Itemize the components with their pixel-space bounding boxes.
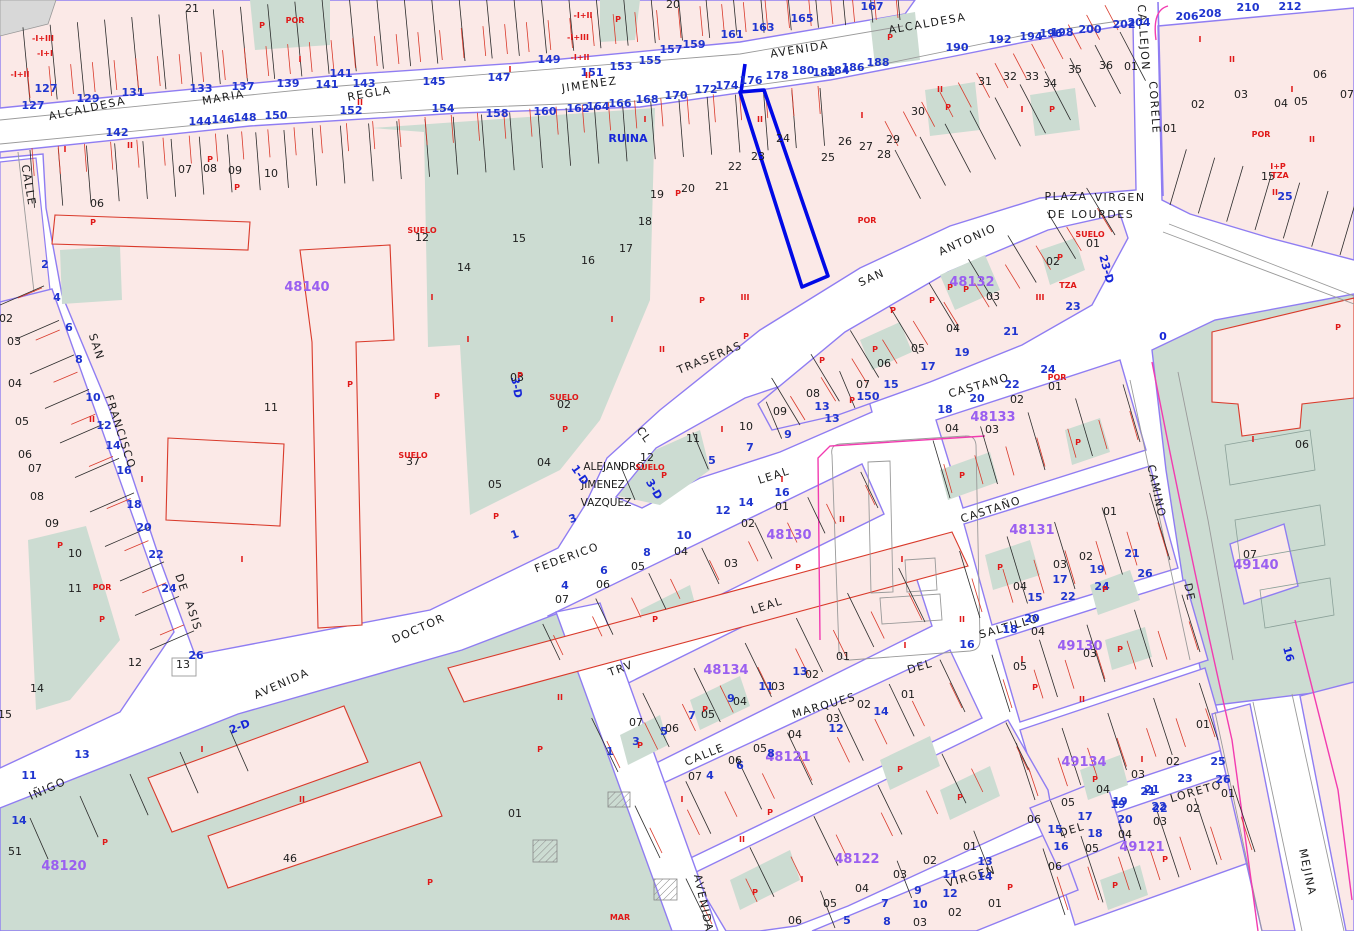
red-mark-labels-item: P <box>795 563 801 572</box>
house-number-labels-item: 20 <box>1117 813 1133 826</box>
parcel-number-labels-item: 07 <box>856 378 870 391</box>
house-number-labels-item: 144 <box>189 115 212 128</box>
house-number-labels-item: 5 <box>708 454 716 467</box>
house-number-labels-item: 8 <box>767 747 775 760</box>
parcel-number-labels-item: 14 <box>30 682 44 695</box>
house-number-labels-item: 148 <box>234 111 257 124</box>
house-number-labels-item: 167 <box>861 0 884 13</box>
parcel-number-labels-item: 09 <box>773 405 787 418</box>
parcel-number-labels-item: 02 <box>805 668 819 681</box>
parcel-number-labels-item: 05 <box>488 478 502 491</box>
parcel-number-labels-item: 06 <box>1295 438 1309 451</box>
red-mark-labels-item: P <box>997 563 1003 572</box>
house-number-labels-item: 157 <box>660 43 683 56</box>
red-mark-labels-item: II <box>1229 55 1235 64</box>
red-mark-labels-item: P <box>517 371 523 380</box>
parcel-number-labels-item: 04 <box>946 322 960 335</box>
parcel-number-labels-item: 03 <box>771 680 785 693</box>
parcel-number-labels-item: 02 <box>1166 755 1180 768</box>
parcel-number-labels-item: 04 <box>1031 625 1045 638</box>
parcel-number-labels-item: 02 <box>1079 550 1093 563</box>
parcel-number-labels-item: 02 <box>0 312 13 325</box>
house-number-labels-item: 212 <box>1279 0 1302 13</box>
parcel-number-labels-item: 07 <box>1340 88 1354 101</box>
owner-annotation-labels-item: VAZQUEZ <box>581 497 632 509</box>
parcel-number-labels-item: 04 <box>1096 783 1110 796</box>
house-number-labels-item: 180 <box>792 64 815 77</box>
parcel-number-labels-item: 14 <box>457 261 471 274</box>
parcel-number-labels-item: 09 <box>228 164 242 177</box>
red-mark-labels-item: I <box>781 475 784 484</box>
house-number-labels-item: 12 <box>715 504 730 517</box>
parcel-number-labels-item: 28 <box>877 148 891 161</box>
red-mark-labels-item: P <box>947 283 953 292</box>
house-number-labels-item: 21 <box>1003 325 1018 338</box>
red-mark-labels-item: P <box>562 425 568 434</box>
parcel-number-labels-item: 01 <box>508 807 522 820</box>
block-id-labels-item: 48132 <box>949 275 994 290</box>
house-number-labels-item: 19 <box>954 346 969 359</box>
red-mark-labels-item: P <box>890 306 896 315</box>
parcel-number-labels-item: 33 <box>1025 70 1039 83</box>
house-number-labels-item: 198 <box>1051 26 1074 39</box>
house-number-labels-item: 172 <box>695 83 718 96</box>
street-name-labels-item: PLAZA <box>1044 190 1087 203</box>
parcel-number-labels-item: 01 <box>1103 505 1117 518</box>
red-mark-labels-item: P <box>434 392 440 401</box>
red-mark-labels-item: I <box>467 335 470 344</box>
cadastral-map-viewport[interactable]: ALCALDESAMARIAREGLAJIMENEZAVENIDAALCALDE… <box>0 0 1354 931</box>
house-number-labels-item: 206 <box>1176 10 1199 23</box>
parcel-number-labels-item: 04 <box>733 695 747 708</box>
red-mark-labels-item: II <box>937 85 943 94</box>
red-mark-labels-item: I <box>904 641 907 650</box>
parcel-number-labels-item: 05 <box>911 342 925 355</box>
red-mark-labels-item: P <box>957 793 963 802</box>
cadastral-map[interactable]: ALCALDESAMARIAREGLAJIMENEZAVENIDAALCALDE… <box>0 0 1354 931</box>
red-mark-labels-item: P <box>207 155 213 164</box>
red-mark-labels-item: P <box>963 285 969 294</box>
red-mark-labels-item: POR <box>93 583 112 592</box>
house-number-labels-item: 26 <box>1215 773 1231 786</box>
house-number-labels-item: 8 <box>75 353 83 366</box>
red-mark-labels-item: P <box>699 296 705 305</box>
blue-note-labels-item: 0 <box>1159 330 1167 343</box>
house-number-labels-item: 18 <box>1002 623 1017 636</box>
red-mark-labels-item: -I+I <box>37 49 53 58</box>
house-number-labels-item: 19 <box>1089 563 1104 576</box>
stairs-hatch <box>533 840 557 862</box>
parcel-number-labels-item: 03 <box>893 868 907 881</box>
house-number-labels-item: 208 <box>1199 7 1222 20</box>
house-number-labels-item: 8 <box>643 546 651 559</box>
house-number-labels-item: 17 <box>1052 573 1067 586</box>
red-mark-labels-item: SUELO <box>407 226 437 235</box>
parcel-number-labels-item: 06 <box>18 448 32 461</box>
parcel-number-labels-item: 07 <box>1243 548 1257 561</box>
house-number-labels-item: 25 <box>1210 755 1225 768</box>
red-mark-labels-item: I <box>801 875 804 884</box>
parcel-number-labels-item: 10 <box>264 167 278 180</box>
house-number-labels-item: 8 <box>883 915 891 928</box>
house-number-labels-item: 164 <box>587 100 610 113</box>
parcel-number-labels-item: 03 <box>986 290 1000 303</box>
house-number-labels-item: 13 <box>977 855 992 868</box>
parcel-number-labels-item: 32 <box>1003 70 1017 83</box>
house-number-labels-item: 139 <box>277 77 300 90</box>
red-mark-labels-item: I <box>241 555 244 564</box>
parcel-number-labels-item: 04 <box>1013 580 1027 593</box>
red-mark-labels-item: P <box>1057 253 1063 262</box>
red-mark-labels-item: II <box>357 98 363 107</box>
street-name-labels-item: VIRGEN <box>1094 191 1145 204</box>
house-number-labels-item: 192 <box>989 33 1012 46</box>
red-mark-labels-item: POR <box>1252 130 1271 139</box>
red-mark-labels-item: II <box>557 693 563 702</box>
house-number-labels-item: 4 <box>706 769 714 782</box>
parcel-number-labels-item: 03 <box>1131 768 1145 781</box>
house-number-labels-item: 127 <box>35 82 58 95</box>
parcel-number-labels-item: 06 <box>596 578 610 591</box>
house-number-labels-item: 210 <box>1237 1 1260 14</box>
red-mark-labels-item: -I+II <box>11 70 30 79</box>
parcel-number-labels-item: 31 <box>978 75 992 88</box>
red-mark-labels-item: I <box>1291 85 1294 94</box>
house-number-labels-item: 19 <box>1110 798 1125 811</box>
parcel-number-labels-item: 13 <box>176 658 190 671</box>
red-mark-labels-item: II <box>659 345 665 354</box>
parcel-number-labels-item: 07 <box>688 770 702 783</box>
red-mark-labels-item: P <box>652 615 658 624</box>
house-number-labels-item: 24 <box>161 582 177 595</box>
house-number-labels-item: 9 <box>784 428 792 441</box>
block-id-labels-item: 48122 <box>834 852 879 867</box>
parcel-number-labels-item: 22 <box>728 160 742 173</box>
house-number-labels-item: 143 <box>353 77 376 90</box>
red-mark-labels-item: P <box>752 888 758 897</box>
parcel-number-labels-item: 27 <box>859 140 873 153</box>
parcel-number-labels-item: 01 <box>775 500 789 513</box>
parcel-number-labels-item: 12 <box>128 656 142 669</box>
red-mark-labels-item: II <box>739 835 745 844</box>
house-number-labels-item: 150 <box>857 390 880 403</box>
street-name-labels-item: SAN <box>856 266 886 289</box>
parcel-number-labels-item: 23 <box>751 150 765 163</box>
red-mark-labels-item: P <box>1049 105 1055 114</box>
street-name-labels-item: CORELE <box>1146 81 1163 135</box>
red-mark-labels-item: P <box>1092 775 1098 784</box>
parcel-number-labels-item: 46 <box>283 852 297 865</box>
house-number-labels-item: 190 <box>946 41 969 54</box>
house-number-labels-item: 7 <box>688 709 696 722</box>
house-number-labels-item: 153 <box>610 60 633 73</box>
red-mark-labels-item: I <box>681 795 684 804</box>
house-number-labels-item: 141 <box>330 67 353 80</box>
red-mark-labels-item: P <box>767 808 773 817</box>
parcel-number-labels-item: 04 <box>537 456 551 469</box>
parcel-number-labels-item: 04 <box>945 422 959 435</box>
house-number-labels-item: 200 <box>1079 23 1102 36</box>
house-number-labels-item: 14 <box>105 439 121 452</box>
parcel-number-labels-item: 03 <box>7 335 21 348</box>
stairs-hatch <box>654 879 677 900</box>
parcel-number-labels-item: 01 <box>1196 718 1210 731</box>
red-mark-labels-item: I <box>64 145 67 154</box>
parcel-number-labels-item: 03 <box>1053 558 1067 571</box>
parcel-number-labels-item: 07 <box>629 716 643 729</box>
parcel-number-labels-item: 06 <box>1048 860 1062 873</box>
parcel-number-labels-item: 35 <box>1068 63 1082 76</box>
parcel-number-labels-item: 04 <box>8 377 22 390</box>
red-mark-labels-item: P <box>929 296 935 305</box>
parcel-number-labels-item: 10 <box>739 420 753 433</box>
block-id-labels-item: 48131 <box>1009 523 1054 538</box>
parcel-number-labels-item: 01 <box>901 688 915 701</box>
red-mark-labels-item: P <box>427 878 433 887</box>
house-number-labels-item: 154 <box>432 102 455 115</box>
red-mark-labels-item: P <box>637 741 643 750</box>
parcel-number-labels-item: 07 <box>28 462 42 475</box>
parcel-number-labels-item: 01 <box>988 897 1002 910</box>
house-number-labels-item: 5 <box>843 914 851 927</box>
house-number-labels-item: 142 <box>106 126 129 139</box>
house-number-labels-item: 6 <box>600 564 608 577</box>
parcel-number-labels-item: 19 <box>650 188 664 201</box>
house-number-labels-item: 4 <box>53 291 61 304</box>
red-mark-labels-item: I <box>901 555 904 564</box>
parcel-number-labels-item: 06 <box>665 722 679 735</box>
block-id-labels-item: 48130 <box>766 528 811 543</box>
parcel-number-labels-item: 05 <box>1085 842 1099 855</box>
parcel-number-labels-item: 05 <box>631 560 645 573</box>
red-mark-labels-item: P <box>819 356 825 365</box>
house-number-labels-item: 7 <box>746 441 754 454</box>
street-name-labels-item: MEJINA <box>1296 848 1319 897</box>
parcel-number-labels-item: 15 <box>0 708 12 721</box>
red-mark-labels-item: P <box>849 396 855 405</box>
house-number-labels-item: 21 <box>1140 785 1155 798</box>
house-number-labels-item: 158 <box>486 107 509 120</box>
house-number-labels-item: 26 <box>1137 567 1153 580</box>
red-mark-labels-item: I+P <box>1270 162 1286 171</box>
parcel-number-labels-item: 25 <box>821 151 835 164</box>
house-number-labels-item: 131 <box>122 86 145 99</box>
red-mark-labels-item: P <box>102 838 108 847</box>
house-number-labels-item: 17 <box>1077 810 1092 823</box>
red-mark-labels-item: SUELO <box>398 451 428 460</box>
house-number-labels-item: 22 <box>1004 378 1019 391</box>
house-number-labels-item: 14 <box>11 814 27 827</box>
house-number-labels-item: 22 <box>148 548 163 561</box>
parcel-number-labels-item: 10 <box>68 547 82 560</box>
parcel-number-labels-item: 30 <box>911 105 925 118</box>
parcel-number-labels-item: 06 <box>728 754 742 767</box>
parcel-number-labels-item: 01 <box>1163 122 1177 135</box>
red-mark-labels-item: P <box>1075 438 1081 447</box>
red-mark-labels-item: I <box>431 293 434 302</box>
house-number-labels-item: 23 <box>1177 772 1192 785</box>
parcel-number-labels-item: 11 <box>686 432 700 445</box>
parcel-number-labels-item: 02 <box>1010 393 1024 406</box>
red-mark-labels-item: P <box>1162 855 1168 864</box>
blue-note-labels-item: RUINA <box>608 132 648 145</box>
house-number-labels-item: 155 <box>639 54 662 67</box>
red-mark-labels-item: P <box>887 33 893 42</box>
house-number-labels-item: 165 <box>791 12 814 25</box>
house-number-labels-item: 188 <box>867 56 890 69</box>
parcel-number-labels-item: 05 <box>823 897 837 910</box>
house-number-labels-item: 15 <box>883 378 898 391</box>
house-number-labels-item: 176 <box>740 74 763 87</box>
parcel-number-labels-item: 02 <box>923 854 937 867</box>
parcel-number-labels-item: 06 <box>1027 813 1041 826</box>
red-mark-labels-item: P <box>537 745 543 754</box>
street-name-labels-item: AVENIDA <box>769 39 829 61</box>
house-number-labels-item: 16 <box>1053 840 1069 853</box>
red-mark-labels-item: TZA <box>1271 171 1289 180</box>
parcel-number-labels-item: 17 <box>619 242 633 255</box>
house-number-labels-item: 160 <box>534 105 557 118</box>
house-number-labels-item: 16 <box>774 486 790 499</box>
parcel-number-labels-item: 09 <box>45 517 59 530</box>
parcel-number-labels-item: 04 <box>855 882 869 895</box>
red-mark-labels-item: POR <box>858 216 877 225</box>
house-number-labels-item: 14 <box>873 705 889 718</box>
parcel-number-labels-item: 06 <box>788 914 802 927</box>
house-number-labels-item: 204 <box>1128 16 1151 29</box>
red-mark-labels-item: II <box>299 795 305 804</box>
parcel-number-labels-item: 01 <box>963 840 977 853</box>
house-number-labels-item: 13 <box>814 400 829 413</box>
house-number-labels-item: 145 <box>423 75 446 88</box>
parcel-number-labels-item: 06 <box>1313 68 1327 81</box>
house-number-labels-item: 161 <box>721 28 744 41</box>
house-number-labels-item: 22 <box>1152 802 1167 815</box>
house-number-labels-item: 13 <box>824 412 839 425</box>
red-mark-labels-item: P <box>702 705 708 714</box>
red-mark-labels-item: -I+II <box>571 53 590 62</box>
parcel-number-labels-item: 01 <box>836 650 850 663</box>
building-48140-west <box>166 438 284 526</box>
parcel-number-labels-item: 02 <box>1191 98 1205 111</box>
parcel-number-labels-item: 04 <box>1274 97 1288 110</box>
parcel-number-labels-item: 02 <box>857 698 871 711</box>
parcel-number-labels-item: 11 <box>68 582 82 595</box>
red-mark-labels-item: POR <box>286 16 305 25</box>
parcel-number-labels-item: 03 <box>724 557 738 570</box>
red-mark-labels-item: P <box>1335 323 1341 332</box>
house-number-labels-item: 16 <box>959 638 975 651</box>
parcel-number-labels-item: 03 <box>913 916 927 929</box>
red-mark-labels-item: P <box>493 512 499 521</box>
red-mark-labels-item: P <box>90 218 96 227</box>
parcel-number-labels-item: 24 <box>776 132 790 145</box>
red-mark-labels-item: TZA <box>1059 281 1077 290</box>
house-number-labels-item: 9 <box>914 884 922 897</box>
house-number-labels-item: 20 <box>136 521 152 534</box>
parcel-number-labels-item: 04 <box>1118 828 1132 841</box>
red-mark-labels-item: II <box>127 141 133 150</box>
parcel-number-labels-item: 04 <box>674 545 688 558</box>
block-id-labels-item: 49121 <box>1119 840 1164 855</box>
parcel-number-labels-item: 05 <box>753 742 767 755</box>
house-number-labels-item: 1 <box>606 745 614 758</box>
parcel-number-labels-item: 03 <box>985 423 999 436</box>
red-mark-labels-item: II <box>89 415 95 424</box>
red-mark-labels-item: -I+II <box>574 11 593 20</box>
red-mark-labels-item: II <box>1272 188 1278 197</box>
red-mark-labels-item: II <box>959 615 965 624</box>
red-mark-labels-item: -I+III <box>567 33 589 42</box>
house-number-labels-item: 168 <box>636 93 659 106</box>
parcel-number-labels-item: 01 <box>1221 787 1235 800</box>
house-number-labels-item: 12 <box>96 419 111 432</box>
parcel-number-labels-item: 03 <box>1234 88 1248 101</box>
red-mark-labels-item: P <box>234 183 240 192</box>
red-mark-labels-item: I <box>1252 435 1255 444</box>
parcel-number-labels-item: 20 <box>681 182 695 195</box>
parcel-number-labels-item: 02 <box>948 906 962 919</box>
house-number-labels-item: 22 <box>1060 590 1075 603</box>
house-number-labels-item: 20 <box>1024 612 1040 625</box>
house-number-labels-item: 127 <box>22 99 45 112</box>
house-number-labels-item: 10 <box>912 898 928 911</box>
house-number-labels-item: 151 <box>581 66 604 79</box>
street-name-labels-item: LEAL <box>756 464 791 486</box>
house-number-labels-item: 170 <box>665 89 688 102</box>
parcel-number-labels-item: 15 <box>512 232 526 245</box>
red-mark-labels-item: P <box>1117 645 1123 654</box>
house-number-labels-item: 7 <box>881 897 889 910</box>
red-mark-labels-item: P <box>259 21 265 30</box>
parcel-number-labels-item: 08 <box>30 490 44 503</box>
house-number-labels-item: 25 <box>1277 190 1292 203</box>
red-mark-labels-item: P <box>675 189 681 198</box>
red-mark-labels-item: III <box>741 293 750 302</box>
stairs-hatch <box>608 792 630 807</box>
house-number-labels-item: 147 <box>488 71 511 84</box>
house-number-labels-item: 10 <box>676 529 692 542</box>
parcel-number-labels-item: 26 <box>838 135 852 148</box>
house-number-labels-item: 17 <box>920 360 935 373</box>
parcel-number-labels-item: 03 <box>1083 647 1097 660</box>
house-number-labels-item: 18 <box>1087 827 1102 840</box>
red-mark-labels-item: P <box>945 103 951 112</box>
parcel-number-labels-item: 21 <box>185 2 199 15</box>
red-mark-labels-item: I <box>644 115 647 124</box>
parcel-number-labels-item: 07 <box>555 593 569 606</box>
parcel-number-labels-item: 05 <box>15 415 29 428</box>
red-mark-labels-item: P <box>1112 881 1118 890</box>
red-mark-labels-item: II <box>1309 135 1315 144</box>
parcel-number-labels-item: 02 <box>741 517 755 530</box>
red-mark-labels-item: I <box>509 65 512 74</box>
house-number-labels-item: 137 <box>232 80 255 93</box>
house-number-labels-item: 178 <box>766 69 789 82</box>
block-id-labels-item: 48134 <box>703 663 748 678</box>
red-mark-labels-item: I <box>1021 655 1024 664</box>
parcel-number-labels-item: 29 <box>886 133 900 146</box>
parcel-number-labels-item: 11 <box>264 401 278 414</box>
house-number-labels-item: 15 <box>1047 823 1062 836</box>
parcel-number-labels-item: 07 <box>178 163 192 176</box>
house-number-labels-item: 10 <box>85 391 101 404</box>
block-id-labels-item: 48120 <box>41 859 86 874</box>
house-number-labels-item: 15 <box>1027 591 1042 604</box>
parcel-number-labels-item: 05 <box>1294 95 1308 108</box>
red-mark-labels-item: P <box>615 15 621 24</box>
house-number-labels-item: 163 <box>752 21 775 34</box>
